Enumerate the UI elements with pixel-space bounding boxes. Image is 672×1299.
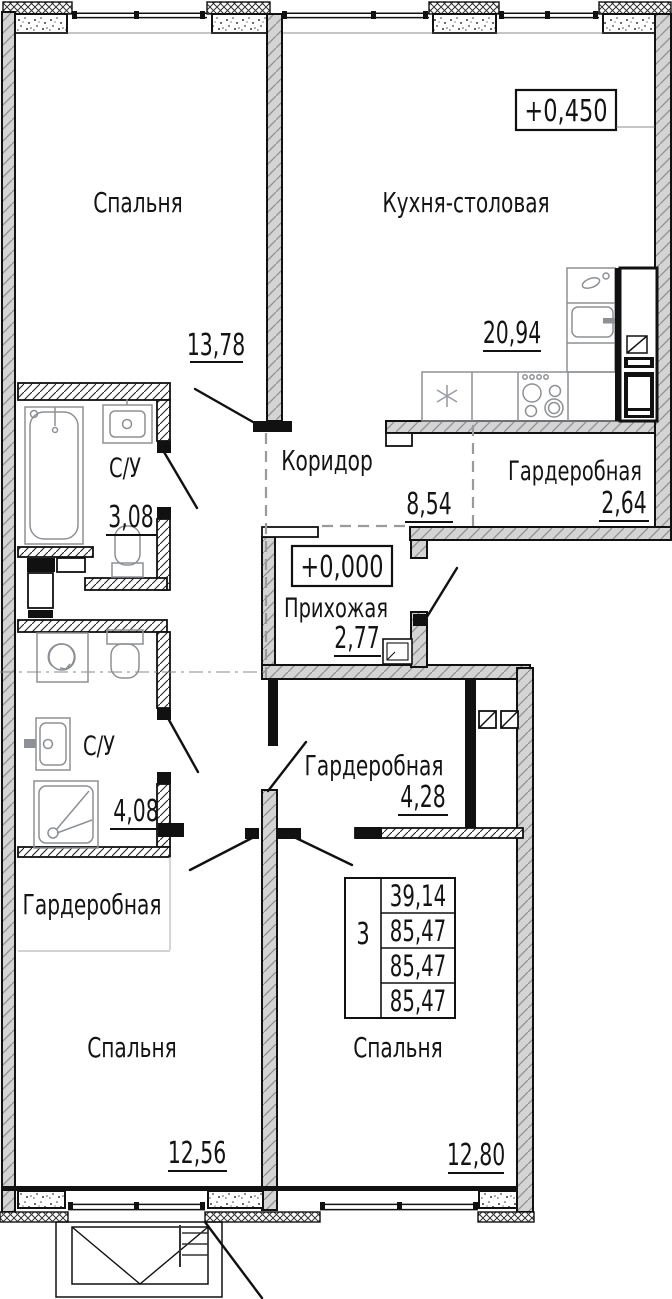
facade-pier <box>478 1212 534 1222</box>
door-jamb <box>157 507 171 519</box>
door-jamb <box>157 772 171 784</box>
stamp-value: 39,14 <box>390 879 446 913</box>
window-mullion <box>545 11 550 19</box>
window-mullion <box>423 11 428 19</box>
room-name-wardrobe-1: Гардеробная <box>508 455 642 487</box>
window-mullion <box>200 11 205 19</box>
duct-shaft <box>57 558 85 572</box>
window-mullion <box>371 11 376 19</box>
wall-hallway-west <box>262 537 275 667</box>
room-area-bedroom-2: 12,56 <box>168 1136 226 1171</box>
wall-bathroom2-east-lower <box>157 784 170 847</box>
stamp-value: 85,47 <box>390 984 446 1018</box>
room-area-corridor: 8,54 <box>406 487 451 522</box>
window-mullion <box>134 11 139 19</box>
room-name-bedroom-2: Спальня <box>87 1031 177 1064</box>
wall-entrance-jamb-upper <box>411 540 427 558</box>
wall-cap-divider-end <box>253 421 292 432</box>
elevation-hallway-value: +0,000 <box>300 550 383 585</box>
room-name-wardrobe-2: Гардеробная <box>305 749 444 782</box>
room-area-bedroom-3: 12,80 <box>447 1138 505 1173</box>
wall-left-exterior <box>2 12 15 1212</box>
wall-partition-under-tub <box>18 547 93 557</box>
wall-cap-wardrobe2-south <box>355 827 382 839</box>
facade-pier <box>599 2 671 14</box>
insulation-block <box>603 14 656 33</box>
room-area-wardrobe-2: 4,28 <box>400 780 445 815</box>
floor-plan: +0,450 +0,000 3 39,14 85,47 85,47 85,47 … <box>0 0 672 1299</box>
wall-step-kitchen-south <box>386 433 412 446</box>
appliance-column <box>620 268 657 421</box>
room-name-hallway: Прихожая <box>284 592 388 624</box>
insulation-block <box>15 14 67 33</box>
wall-right-exterior-lower <box>517 668 533 1212</box>
facade-pier <box>207 2 270 14</box>
room-area-bedroom-1: 13,78 <box>187 328 245 363</box>
elevation-badge-hallway: +0,000 <box>292 546 392 586</box>
wall-niche-divider <box>465 680 476 833</box>
faucet <box>24 739 36 748</box>
room-name-wardrobe-3: Гардеробная <box>23 888 162 921</box>
insulation-block <box>433 14 496 33</box>
wall-wardrobe2-west <box>268 680 278 746</box>
window-mullion <box>320 1202 325 1210</box>
room-name-kitchen: Кухня-столовая <box>382 186 549 219</box>
window-mullion <box>397 1202 402 1210</box>
wall-bathroom2-north <box>18 620 167 632</box>
insulation-block <box>479 1191 517 1208</box>
duct-shaft <box>28 573 53 608</box>
facade-pier <box>0 1212 68 1222</box>
wall-hall-north <box>410 527 671 540</box>
room-name-bedroom-1: Спальня <box>93 186 183 219</box>
window-mullion <box>134 1202 139 1210</box>
duct-shaft <box>28 610 53 618</box>
window-mullion <box>593 11 598 19</box>
wall-bedroom-kitchen-divider <box>267 14 282 421</box>
room-area-bathroom-1: 3,08 <box>108 500 153 535</box>
hallway-cabinet <box>383 639 412 664</box>
wall-bathroom1-east-upper <box>157 400 170 441</box>
wall-bathroom1-north <box>18 383 170 400</box>
room-area-hallway: 2,77 <box>334 621 379 656</box>
insulation-block <box>212 14 267 33</box>
room-name-bedroom-3: Спальня <box>353 1031 443 1064</box>
wall-partition-mid <box>85 578 167 590</box>
stamp-value: 85,47 <box>390 949 446 983</box>
wall-hallway-south <box>262 665 530 679</box>
room-area-wardrobe-1: 2,64 <box>601 486 646 521</box>
wall-bathroom2-east-upper <box>157 632 170 708</box>
apartment-stamp-table: 3 39,14 85,47 85,47 85,47 <box>345 878 455 1018</box>
window-mullion <box>499 11 504 19</box>
window-mullion <box>68 1202 73 1210</box>
stamp-value: 85,47 <box>390 914 446 948</box>
stamp-room-count: 3 <box>356 917 369 952</box>
room-area-bathroom-2: 4,08 <box>113 794 158 829</box>
insulation-block <box>208 1191 263 1208</box>
wall-bedrooms-divider <box>262 790 277 1210</box>
elevation-kitchen-value: +0,450 <box>524 94 607 129</box>
window-mullion <box>200 1202 205 1210</box>
room-name-corridor: Коридор <box>281 444 373 477</box>
window-mullion <box>473 1202 478 1210</box>
wall-stub-hallway-top <box>262 527 318 537</box>
wall-kitchen-south <box>386 421 655 433</box>
facade-pier <box>429 2 499 14</box>
room-name-bathroom-1: С/У <box>109 452 141 484</box>
room-name-bathroom-2: С/У <box>83 730 115 762</box>
insulation-block <box>18 1191 65 1208</box>
facade-pier <box>205 1212 320 1222</box>
duct-shaft <box>27 558 55 572</box>
room-area-kitchen: 20,94 <box>483 316 541 351</box>
door-jamb <box>157 708 171 720</box>
window-mullion <box>72 11 77 19</box>
